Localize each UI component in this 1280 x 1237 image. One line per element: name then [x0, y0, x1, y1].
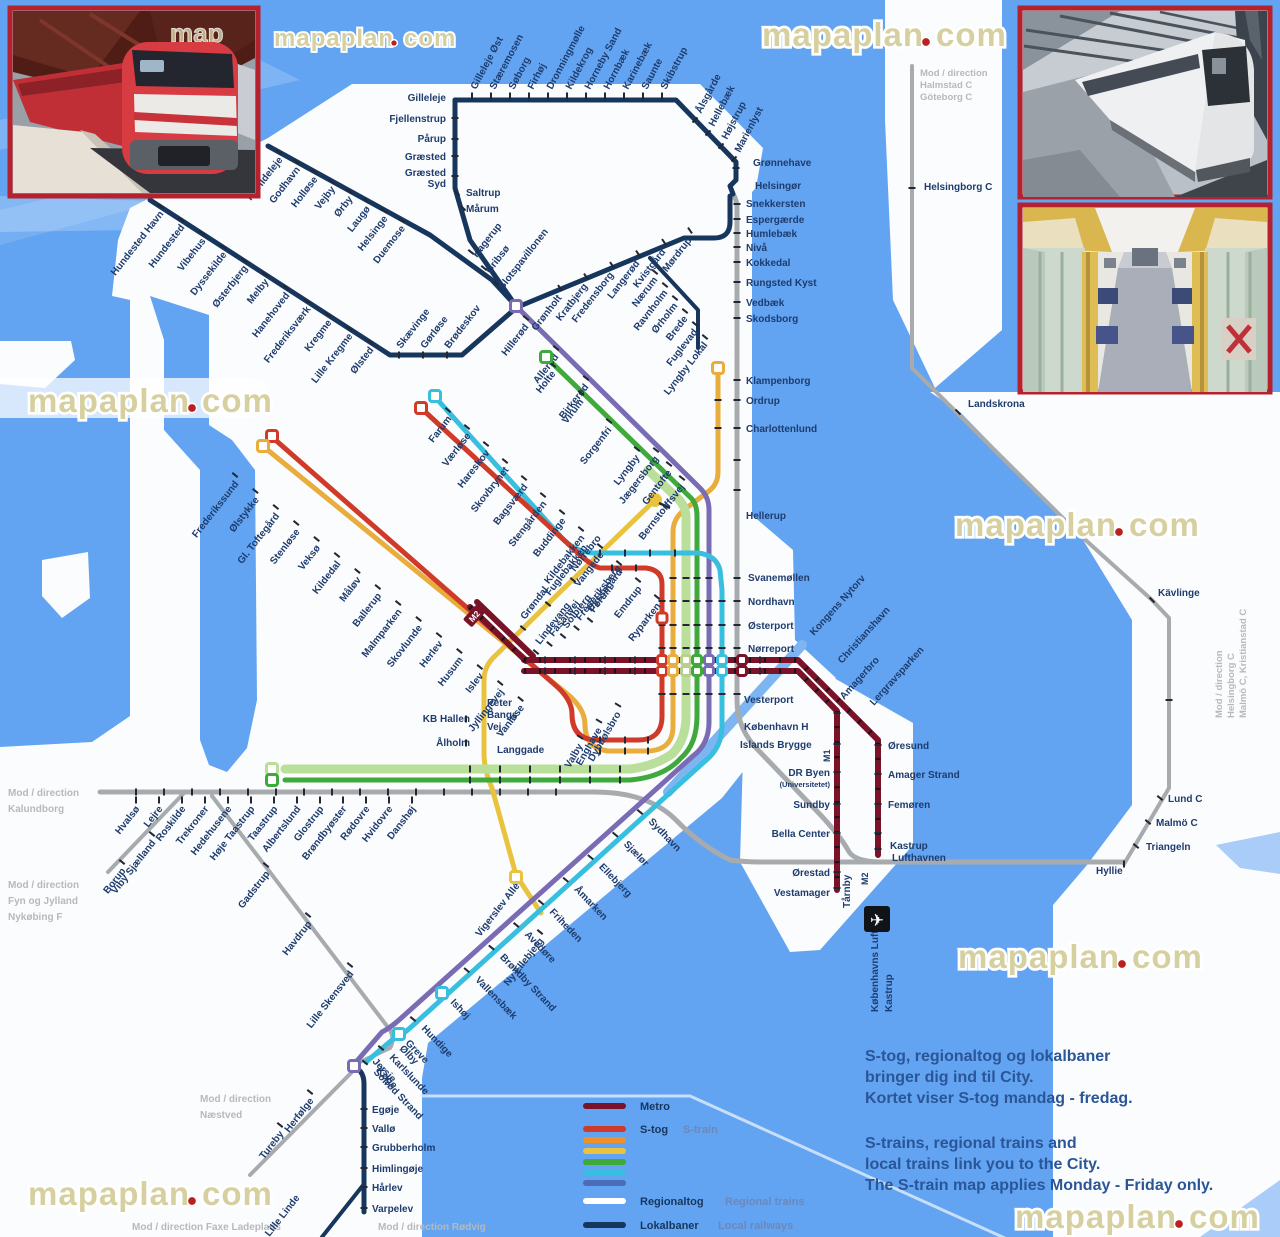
svg-text:Langgade: Langgade: [497, 745, 545, 756]
svg-text:Triangeln: Triangeln: [1146, 842, 1190, 853]
svg-text:com: com: [202, 1175, 273, 1212]
svg-text:The S-train map applies Monday: The S-train map applies Monday - Friday …: [865, 1177, 1213, 1194]
svg-text:mapaplan: mapaplan: [1015, 1198, 1177, 1235]
svg-text:mapaplan: mapaplan: [274, 25, 394, 52]
svg-text:Regionaltog: Regionaltog: [640, 1196, 704, 1208]
svg-text:Klampenborg: Klampenborg: [746, 376, 810, 387]
svg-text:Egøje: Egøje: [372, 1105, 400, 1116]
svg-text:Nivå: Nivå: [746, 242, 768, 254]
svg-text:Svanemøllen: Svanemøllen: [748, 573, 810, 584]
svg-text:Næstved: Næstved: [200, 1110, 242, 1121]
svg-text:mapaplan: mapaplan: [28, 382, 190, 419]
svg-text:Østerport: Østerport: [748, 621, 794, 632]
svg-text:Ordrup: Ordrup: [746, 396, 780, 407]
svg-text:KB Hallen: KB Hallen: [423, 714, 470, 725]
svg-text:Lokalbaner: Lokalbaner: [640, 1220, 699, 1232]
svg-text:Regional trains: Regional trains: [725, 1196, 804, 1208]
svg-text:Vestamager: Vestamager: [774, 888, 830, 899]
svg-text:Mod / direction: Mod / direction: [1214, 650, 1225, 718]
svg-text:Bella Center: Bella Center: [772, 829, 830, 840]
svg-text:Syd: Syd: [428, 179, 446, 190]
svg-text:com: com: [1129, 506, 1200, 543]
svg-text:Varpelev: Varpelev: [372, 1204, 414, 1215]
svg-text:Kokkedal: Kokkedal: [746, 258, 791, 269]
svg-text:Rungsted Kyst: Rungsted Kyst: [746, 278, 817, 289]
svg-text:DR Byen: DR Byen: [788, 768, 830, 779]
svg-text:Femøren: Femøren: [888, 800, 930, 811]
svg-text:S-tog: S-tog: [640, 1124, 668, 1136]
svg-text:Fjellenstrup: Fjellenstrup: [389, 114, 446, 125]
svg-text:Kävlinge: Kävlinge: [1158, 588, 1200, 599]
svg-text:Espergærde: Espergærde: [746, 215, 805, 226]
svg-text:S-train: S-train: [683, 1124, 718, 1136]
svg-text:Bangs: Bangs: [487, 710, 518, 721]
svg-text:Göteborg C: Göteborg C: [920, 92, 972, 103]
svg-text:Islands Brygge: Islands Brygge: [740, 740, 812, 751]
svg-text:✈: ✈: [870, 911, 884, 930]
svg-text:M1: M1: [822, 749, 832, 762]
svg-text:Kalundborg: Kalundborg: [8, 804, 64, 815]
svg-text:Charlottenlund: Charlottenlund: [746, 424, 817, 435]
svg-text:Mod / direction: Mod / direction: [8, 788, 79, 799]
svg-text:Mod / direction: Mod / direction: [200, 1094, 271, 1105]
svg-text:Hellerup: Hellerup: [746, 511, 786, 522]
svg-text:mapaplan: mapaplan: [762, 16, 924, 53]
svg-text:com: com: [1189, 1198, 1260, 1235]
svg-text:Nørreport: Nørreport: [748, 644, 795, 655]
svg-text:Græsted: Græsted: [405, 152, 446, 163]
svg-text:mapaplan: mapaplan: [28, 1175, 190, 1212]
svg-text:Peter: Peter: [487, 698, 512, 709]
svg-text:Amager Strand: Amager Strand: [888, 770, 960, 781]
svg-text:(Universitetet): (Universitetet): [780, 780, 831, 789]
svg-text:Lufthavnen: Lufthavnen: [892, 853, 946, 864]
svg-text:Malmö C, Kristianstad C: Malmö C, Kristianstad C: [1238, 609, 1249, 718]
svg-text:Mårum: Mårum: [466, 203, 499, 215]
svg-text:Vej: Vej: [487, 722, 502, 733]
svg-text:Sundby: Sundby: [793, 800, 830, 811]
svg-text:Øresund: Øresund: [888, 741, 929, 752]
svg-text:Fyn og Jylland: Fyn og Jylland: [8, 896, 78, 907]
svg-text:Grønnehave: Grønnehave: [753, 158, 812, 169]
svg-text:Halmstad C: Halmstad C: [920, 80, 972, 91]
svg-text:Hårlev: Hårlev: [372, 1182, 403, 1194]
svg-text:com: com: [936, 16, 1007, 53]
svg-text:Nordhavn: Nordhavn: [748, 597, 795, 608]
svg-text:Helsingborg C: Helsingborg C: [924, 182, 992, 193]
svg-text:local trains link you to the C: local trains link you to the City.: [865, 1156, 1100, 1173]
svg-text:Vallø: Vallø: [372, 1124, 396, 1135]
svg-text:Tårnby: Tårnby: [841, 874, 853, 908]
svg-text:Kortet viser S-tog mandag - fr: Kortet viser S-tog mandag - fredag.: [865, 1090, 1133, 1107]
svg-text:Lund C: Lund C: [1168, 794, 1202, 805]
svg-text:København H: København H: [744, 722, 808, 733]
svg-text:Ørestad: Ørestad: [792, 868, 830, 879]
svg-text:Landskrona: Landskrona: [968, 399, 1025, 410]
svg-text:Græsted: Græsted: [405, 168, 446, 179]
svg-text:Helsingborg C: Helsingborg C: [1226, 653, 1237, 718]
svg-text:Himlingøje: Himlingøje: [372, 1164, 424, 1175]
svg-text:Vesterport: Vesterport: [744, 695, 794, 706]
svg-text:Mod / direction Rødvig: Mod / direction Rødvig: [378, 1222, 486, 1233]
svg-text:Malmö C: Malmö C: [1156, 818, 1198, 829]
svg-text:Nykøbing F: Nykøbing F: [8, 912, 62, 923]
svg-text:M2: M2: [860, 872, 870, 885]
svg-text:Kastrup: Kastrup: [884, 974, 895, 1012]
svg-text:Metro: Metro: [640, 1101, 670, 1113]
svg-text:mapaplan: mapaplan: [958, 938, 1120, 975]
svg-text:Skodsborg: Skodsborg: [746, 314, 798, 325]
svg-text:Mod / direction: Mod / direction: [8, 880, 79, 891]
svg-text:com: com: [202, 382, 273, 419]
svg-text:Mod / direction Faxe Ladeplads: Mod / direction Faxe Ladeplads: [132, 1222, 281, 1233]
svg-text:Vedbæk: Vedbæk: [746, 298, 785, 309]
svg-text:Kastrup: Kastrup: [890, 841, 928, 852]
svg-text:Humlebæk: Humlebæk: [746, 229, 798, 240]
svg-text:Saltrup: Saltrup: [466, 188, 500, 199]
svg-text:bringer dig ind til City.: bringer dig ind til City.: [865, 1069, 1034, 1086]
svg-text:Grubberholm: Grubberholm: [372, 1143, 435, 1154]
svg-text:Helsingør: Helsingør: [755, 181, 801, 192]
svg-text:Gilleleje: Gilleleje: [408, 93, 447, 104]
svg-text:S-tog, regionaltog og lokalban: S-tog, regionaltog og lokalbaner: [865, 1048, 1110, 1065]
svg-text:com: com: [404, 25, 456, 52]
svg-text:Snekkersten: Snekkersten: [746, 199, 805, 210]
svg-text:mapaplan: mapaplan: [955, 506, 1117, 543]
svg-text:Local railways: Local railways: [718, 1220, 793, 1232]
svg-text:S-trains, regional trains and: S-trains, regional trains and: [865, 1135, 1077, 1152]
svg-text:Mod / direction: Mod / direction: [920, 68, 988, 79]
svg-text:Pårup: Pårup: [418, 133, 446, 145]
svg-text:Hyllie: Hyllie: [1096, 866, 1123, 877]
svg-text:com: com: [1132, 938, 1203, 975]
